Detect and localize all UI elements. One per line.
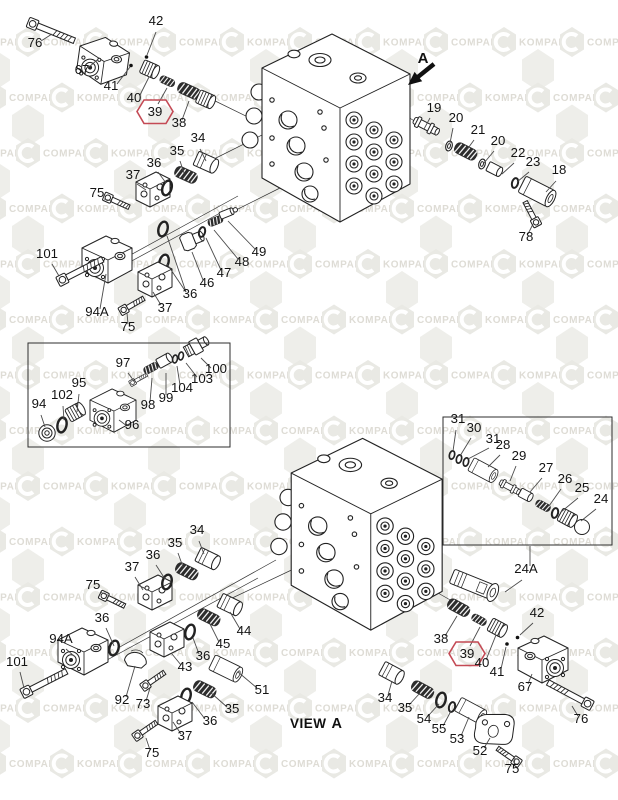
callout-label: 31 bbox=[451, 411, 466, 426]
callout-label: 37 bbox=[125, 559, 140, 574]
watermark-logo-icon bbox=[0, 83, 6, 113]
callout-label: 34 bbox=[190, 522, 205, 537]
callout-label: 39 bbox=[460, 646, 475, 661]
callout-label: 42 bbox=[149, 13, 164, 28]
callout-label: 44 bbox=[237, 623, 252, 638]
watermark-hex-icon bbox=[0, 160, 10, 202]
callout-label: 99 bbox=[159, 390, 174, 405]
callout-label: 20 bbox=[449, 110, 464, 125]
callout-label: 97 bbox=[116, 355, 131, 370]
callout-label: 102 bbox=[51, 387, 73, 402]
part-94-cap bbox=[39, 425, 55, 441]
callout-label: 42 bbox=[530, 605, 545, 620]
watermark-logo-icon bbox=[0, 194, 6, 224]
callout-label: 75 bbox=[90, 185, 105, 200]
watermark-logo-icon bbox=[0, 749, 6, 779]
callout-label: 34 bbox=[378, 690, 393, 705]
callout-label: 52 bbox=[473, 743, 488, 758]
callout-label: 22 bbox=[511, 145, 526, 160]
part-100-fitting bbox=[182, 333, 211, 358]
callout-label: 18 bbox=[552, 162, 567, 177]
watermark-text: COMPART bbox=[587, 38, 618, 49]
callout-label: 47 bbox=[217, 265, 232, 280]
callout-label: 27 bbox=[539, 460, 554, 475]
callout-label: 96 bbox=[125, 417, 140, 432]
part-40-plug bbox=[487, 618, 509, 639]
part-23-oring bbox=[511, 177, 519, 188]
callout-label: 51 bbox=[255, 682, 270, 697]
callout-label: 36 bbox=[196, 648, 211, 663]
part-24-head bbox=[575, 520, 590, 535]
callout-label: 21 bbox=[471, 122, 486, 137]
part-28-body bbox=[468, 458, 500, 484]
callout-label: 67 bbox=[75, 62, 90, 77]
callout-label: 78 bbox=[519, 229, 534, 244]
callout-label: 41 bbox=[104, 78, 119, 93]
callout-label: 75 bbox=[505, 761, 520, 776]
callout-label: 49 bbox=[252, 244, 267, 259]
watermark-logo-icon bbox=[0, 416, 6, 446]
callout-label: 24 bbox=[594, 491, 609, 506]
callout-label: 53 bbox=[450, 731, 465, 746]
callout-label: 24A bbox=[514, 561, 538, 576]
callout-label: 75 bbox=[121, 319, 136, 334]
callout-label: 98 bbox=[141, 397, 156, 412]
callout-label: 101 bbox=[36, 246, 58, 261]
part-30-oring bbox=[455, 454, 462, 464]
watermark-text: COMPART bbox=[587, 593, 618, 604]
part-46-plug bbox=[179, 228, 207, 252]
callout-label: 34 bbox=[191, 130, 206, 145]
callout-label: 37 bbox=[126, 167, 141, 182]
callout-label: 104 bbox=[171, 380, 193, 395]
callout-label: 41 bbox=[490, 664, 505, 679]
part-41-ball bbox=[505, 642, 509, 646]
callout-label: 76 bbox=[574, 711, 589, 726]
callout-label: 55 bbox=[432, 721, 447, 736]
watermark-text: COMPART bbox=[587, 149, 618, 160]
callout-label: 36 bbox=[147, 155, 162, 170]
callout-label: 28 bbox=[496, 437, 511, 452]
callout-label: 40 bbox=[127, 90, 142, 105]
part-20-washer bbox=[478, 158, 487, 169]
callout-label: 36 bbox=[146, 547, 161, 562]
callout-leader-line bbox=[468, 448, 489, 459]
parts-diagram-page: KOMPARTCOMPARTKOMPARTCOMPARTKOMPARTCOMPA… bbox=[0, 0, 618, 800]
callout-label: 76 bbox=[28, 35, 43, 50]
callout-label: 38 bbox=[434, 631, 449, 646]
callout-leader-line bbox=[488, 455, 500, 467]
callout-label: 101 bbox=[6, 654, 28, 669]
callout-label: 40 bbox=[475, 655, 490, 670]
callout-label: 45 bbox=[216, 636, 231, 651]
callout-label: 36 bbox=[183, 286, 198, 301]
callout-label: 73 bbox=[136, 696, 151, 711]
part-35-spring bbox=[173, 165, 200, 186]
callout-label: 37 bbox=[178, 728, 193, 743]
callout-label: 43 bbox=[178, 659, 193, 674]
part-41-ball bbox=[129, 64, 133, 68]
callout-label: 103 bbox=[191, 371, 213, 386]
callout-leader-line bbox=[581, 509, 596, 521]
part-42-pin bbox=[516, 636, 520, 640]
callout-label: 35 bbox=[168, 535, 183, 550]
callout-label: 67 bbox=[518, 679, 533, 694]
watermark-hex-icon bbox=[0, 604, 10, 646]
callout-label: 94A bbox=[49, 631, 73, 646]
callout-label: 37 bbox=[158, 300, 173, 315]
callout-leader-line bbox=[561, 498, 578, 512]
view-direction-label: A bbox=[418, 50, 429, 67]
callout-label: 19 bbox=[427, 100, 442, 115]
part-45-spring bbox=[195, 607, 222, 628]
callout-label: 54 bbox=[417, 711, 432, 726]
part-35-spring bbox=[191, 679, 218, 700]
callout-label: 94A bbox=[85, 304, 109, 319]
callout-label: 30 bbox=[467, 420, 482, 435]
part-103-oring bbox=[178, 352, 184, 361]
watermark-hex-icon bbox=[0, 382, 10, 424]
watermark-logo-icon bbox=[0, 305, 6, 335]
part-39-spring bbox=[470, 612, 488, 627]
part-42-pin bbox=[145, 55, 149, 59]
callout-label: 36 bbox=[95, 610, 110, 625]
watermark-hex-icon bbox=[0, 493, 10, 535]
watermark-text: COMPART bbox=[587, 260, 618, 271]
callout-label: 35 bbox=[170, 143, 185, 158]
callout-label: 92 bbox=[115, 692, 130, 707]
callout-label: 35 bbox=[225, 701, 240, 716]
callout-label: 94 bbox=[32, 396, 47, 411]
part-51-plug bbox=[208, 655, 244, 684]
callout-label: 35 bbox=[398, 700, 413, 715]
callout-label: 46 bbox=[200, 275, 215, 290]
callout-label: 75 bbox=[86, 577, 101, 592]
part-39-spring bbox=[158, 74, 176, 88]
view-a-caption: VIEWA bbox=[290, 716, 343, 732]
callout-label: 75 bbox=[145, 745, 160, 760]
callout-label: 95 bbox=[72, 375, 87, 390]
callout-label: 25 bbox=[575, 480, 590, 495]
part-95-plug bbox=[65, 401, 88, 422]
callout-label: 23 bbox=[526, 154, 541, 169]
part-36-oring bbox=[184, 624, 197, 641]
watermark-hex-icon bbox=[0, 271, 10, 313]
callout-label: 29 bbox=[512, 448, 527, 463]
watermark-hex-icon bbox=[0, 49, 10, 91]
watermark-text: COMPART bbox=[587, 371, 618, 382]
watermark-logo-icon bbox=[0, 527, 6, 557]
callout-label: 48 bbox=[235, 254, 250, 269]
callout-label: 39 bbox=[148, 104, 163, 119]
callout-label: 26 bbox=[558, 471, 573, 486]
callout-label: 38 bbox=[172, 115, 187, 130]
callout-label: 20 bbox=[491, 133, 506, 148]
callout-label: 36 bbox=[203, 713, 218, 728]
watermark-hex-icon bbox=[0, 715, 10, 757]
